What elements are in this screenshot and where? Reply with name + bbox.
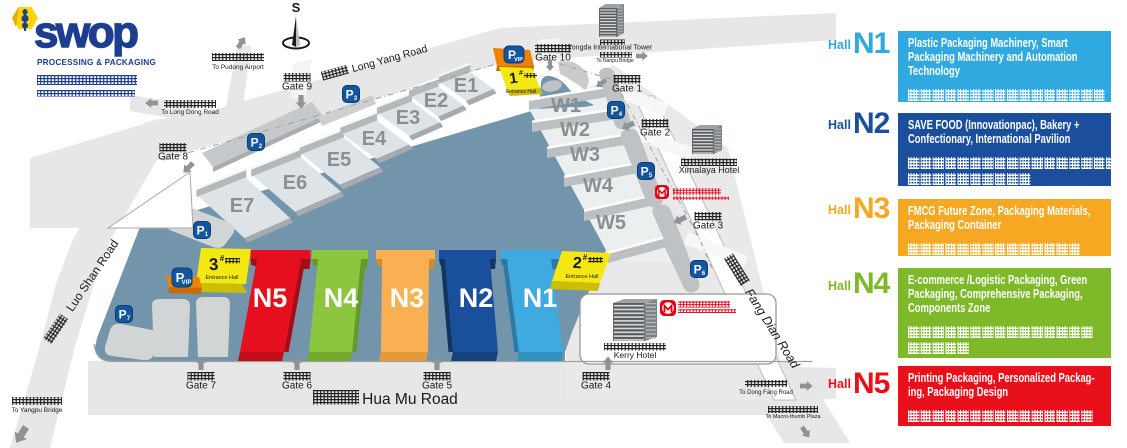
svg-text:E7: E7 <box>230 195 254 217</box>
svg-text:E3: E3 <box>396 107 420 129</box>
svg-text:VIP: VIP <box>514 57 523 63</box>
svg-text:E1: E1 <box>454 75 478 97</box>
svg-text:W3: W3 <box>570 144 600 166</box>
svg-text:P: P <box>251 135 259 149</box>
svg-text:Hua Mu Road: Hua Mu Road <box>362 391 458 408</box>
svg-text:P: P <box>641 164 649 178</box>
svg-text:Entrance Hall: Entrance Hall <box>565 274 598 280</box>
svg-text:To Dong Fang Road: To Dong Fang Road <box>739 390 793 396</box>
svg-text:Gate 2: Gate 2 <box>640 128 670 139</box>
svg-text:#: # <box>583 253 588 262</box>
svg-text:VIP: VIP <box>182 280 192 286</box>
svg-text:To Nanpu Bridge: To Nanpu Bridge <box>596 58 633 64</box>
svg-text:E6: E6 <box>283 172 307 194</box>
svg-text:Entrance Hall: Entrance Hall <box>506 89 536 95</box>
svg-text:S: S <box>292 0 301 15</box>
svg-text:N5: N5 <box>253 283 288 313</box>
svg-text:Gate 4: Gate 4 <box>581 381 611 392</box>
svg-text:To Yangpu Bridge: To Yangpu Bridge <box>11 407 62 414</box>
svg-text:P: P <box>694 262 702 276</box>
svg-text:P: P <box>611 103 619 117</box>
svg-text:To Macro-thumb Plaza: To Macro-thumb Plaza <box>765 414 821 420</box>
svg-text:W1: W1 <box>551 95 581 117</box>
svg-text:Gate 10: Gate 10 <box>535 53 571 64</box>
svg-text:Gate 7: Gate 7 <box>186 381 216 392</box>
svg-text:P: P <box>119 307 127 321</box>
svg-text:Gate 8: Gate 8 <box>158 152 188 163</box>
svg-text:N3: N3 <box>390 283 425 313</box>
svg-text:#: # <box>519 70 523 77</box>
svg-text:To Pudong Airport: To Pudong Airport <box>212 64 264 71</box>
svg-text:Kerry Hotel: Kerry Hotel <box>614 350 657 360</box>
svg-text:E5: E5 <box>327 149 351 171</box>
svg-text:#: # <box>220 254 225 263</box>
svg-text:P: P <box>346 87 354 101</box>
svg-text:Yongda International Tower: Yongda International Tower <box>568 45 653 52</box>
svg-text:PROCESSING & PACKAGING: PROCESSING & PACKAGING <box>37 58 156 67</box>
svg-text:Entrance Hall: Entrance Hall <box>205 275 238 281</box>
svg-text:Ximalaya Hotel: Ximalaya Hotel <box>679 165 740 175</box>
svg-text:To Long Dong Road: To Long Dong Road <box>161 109 219 116</box>
svg-text:Gate 6: Gate 6 <box>282 381 312 392</box>
svg-text:3: 3 <box>208 255 218 274</box>
svg-text:Gate 1: Gate 1 <box>612 84 642 95</box>
svg-text:N2: N2 <box>459 283 494 313</box>
svg-text:swop: swop <box>34 8 138 57</box>
svg-text:2: 2 <box>572 255 582 273</box>
svg-text:E2: E2 <box>424 90 448 112</box>
svg-text:Gate 5: Gate 5 <box>422 381 452 392</box>
svg-text:W4: W4 <box>583 175 614 197</box>
svg-text:N4: N4 <box>324 283 359 313</box>
svg-text:E4: E4 <box>362 128 387 150</box>
svg-text:Gate 9: Gate 9 <box>282 82 312 93</box>
svg-text:Gate 3: Gate 3 <box>693 221 723 232</box>
svg-text:P: P <box>197 223 205 237</box>
svg-text:W5: W5 <box>596 212 626 234</box>
svg-text:W2: W2 <box>560 119 590 141</box>
